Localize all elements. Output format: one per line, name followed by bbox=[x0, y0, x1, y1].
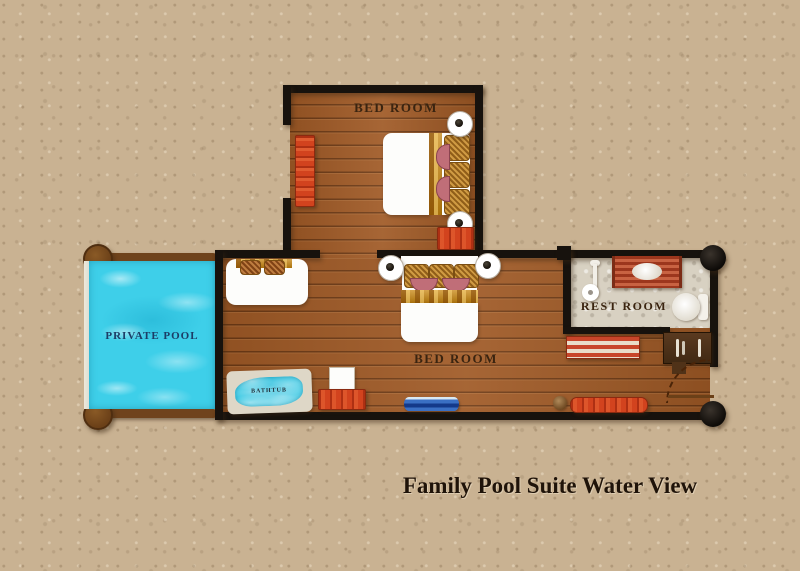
lounge-sofa-pillow-1 bbox=[240, 260, 261, 275]
main-bed-lamp-left bbox=[378, 255, 404, 281]
top-bed-duvet bbox=[383, 133, 429, 215]
top-bedroom-wall-top bbox=[283, 85, 483, 93]
main-bedroom-side-table bbox=[329, 367, 355, 390]
main-bed-duvet bbox=[401, 303, 478, 342]
restroom-wall-bottom bbox=[563, 327, 670, 334]
lounge-sofa-pillow-2 bbox=[264, 260, 285, 275]
bathtub: BATHTUB bbox=[226, 369, 312, 415]
hanger-icon bbox=[676, 339, 679, 357]
restroom-wall-left bbox=[563, 250, 571, 334]
hallway-knob-icon bbox=[553, 396, 567, 410]
main-bed-blanket bbox=[401, 290, 478, 303]
suite-wall-top-left bbox=[215, 250, 320, 258]
restroom-label: REST ROOM bbox=[570, 299, 678, 314]
top-bedroom: BED ROOM bbox=[276, 78, 491, 263]
main-bed-lamp-right bbox=[475, 253, 501, 279]
shower-icon bbox=[580, 260, 602, 304]
suite-post-top-right-icon bbox=[700, 245, 726, 271]
top-bedroom-wall-left-upper bbox=[283, 85, 291, 125]
top-bedroom-wall-right bbox=[475, 85, 483, 265]
entry-door-leaf bbox=[668, 395, 714, 398]
floor-plan-page: { "title": "Family Pool Suite Water View… bbox=[0, 0, 800, 571]
hanger-icon bbox=[682, 341, 685, 355]
top-bedroom-label: BED ROOM bbox=[331, 100, 461, 116]
main-bedroom-bench bbox=[318, 389, 366, 410]
private-pool-area: PRIVATE POOL bbox=[80, 244, 220, 426]
restroom-corner-block bbox=[557, 246, 571, 260]
main-bedroom-label: BED ROOM bbox=[391, 351, 521, 367]
suite-post-bottom-right-icon bbox=[700, 401, 726, 427]
hanger-icon bbox=[698, 339, 701, 357]
top-bedroom-bench bbox=[295, 135, 315, 207]
suite-wall-left bbox=[215, 250, 223, 420]
vanity-rug bbox=[612, 256, 682, 288]
main-bedroom-rug bbox=[404, 397, 459, 411]
main-suite: BATHTUB BED ROOM REST ROOM bbox=[208, 243, 724, 428]
pool-beam-bottom bbox=[95, 409, 217, 418]
sink-basin-icon bbox=[632, 263, 662, 280]
hallway-bench bbox=[570, 397, 648, 413]
suite-wall-bottom bbox=[215, 412, 717, 420]
page-title: Family Pool Suite Water View bbox=[355, 473, 745, 499]
luggage-bench bbox=[566, 336, 640, 359]
private-pool-label: PRIVATE POOL bbox=[89, 330, 215, 342]
